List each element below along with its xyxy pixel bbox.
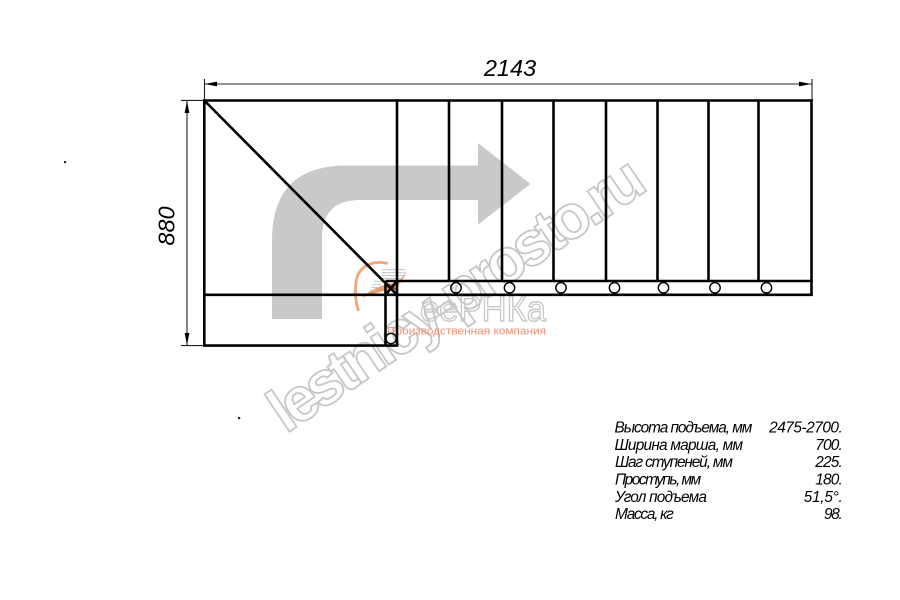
svg-text:Шаг ступеней, мм: Шаг ступеней, мм — [615, 454, 733, 471]
svg-text:880: 880 — [154, 206, 180, 245]
svg-text:180.: 180. — [815, 471, 843, 488]
svg-text:Ширина марша, мм: Ширина марша, мм — [615, 437, 744, 454]
svg-text:225.: 225. — [814, 454, 843, 471]
svg-text:98.: 98. — [824, 506, 843, 523]
svg-text:2143: 2143 — [483, 55, 536, 81]
svg-text:Угол подъема: Угол подъема — [614, 489, 707, 506]
svg-text:2475-2700.: 2475-2700. — [768, 420, 843, 437]
svg-text:Высота подъема, мм: Высота подъема, мм — [615, 420, 753, 437]
svg-text:Масса, кг: Масса, кг — [615, 506, 674, 523]
svg-text:51,5°.: 51,5°. — [804, 489, 843, 506]
svg-text:700.: 700. — [815, 437, 843, 454]
svg-text:Проступь, мм: Проступь, мм — [615, 471, 702, 488]
svg-text:Производственная компания: Производственная компания — [387, 326, 546, 338]
